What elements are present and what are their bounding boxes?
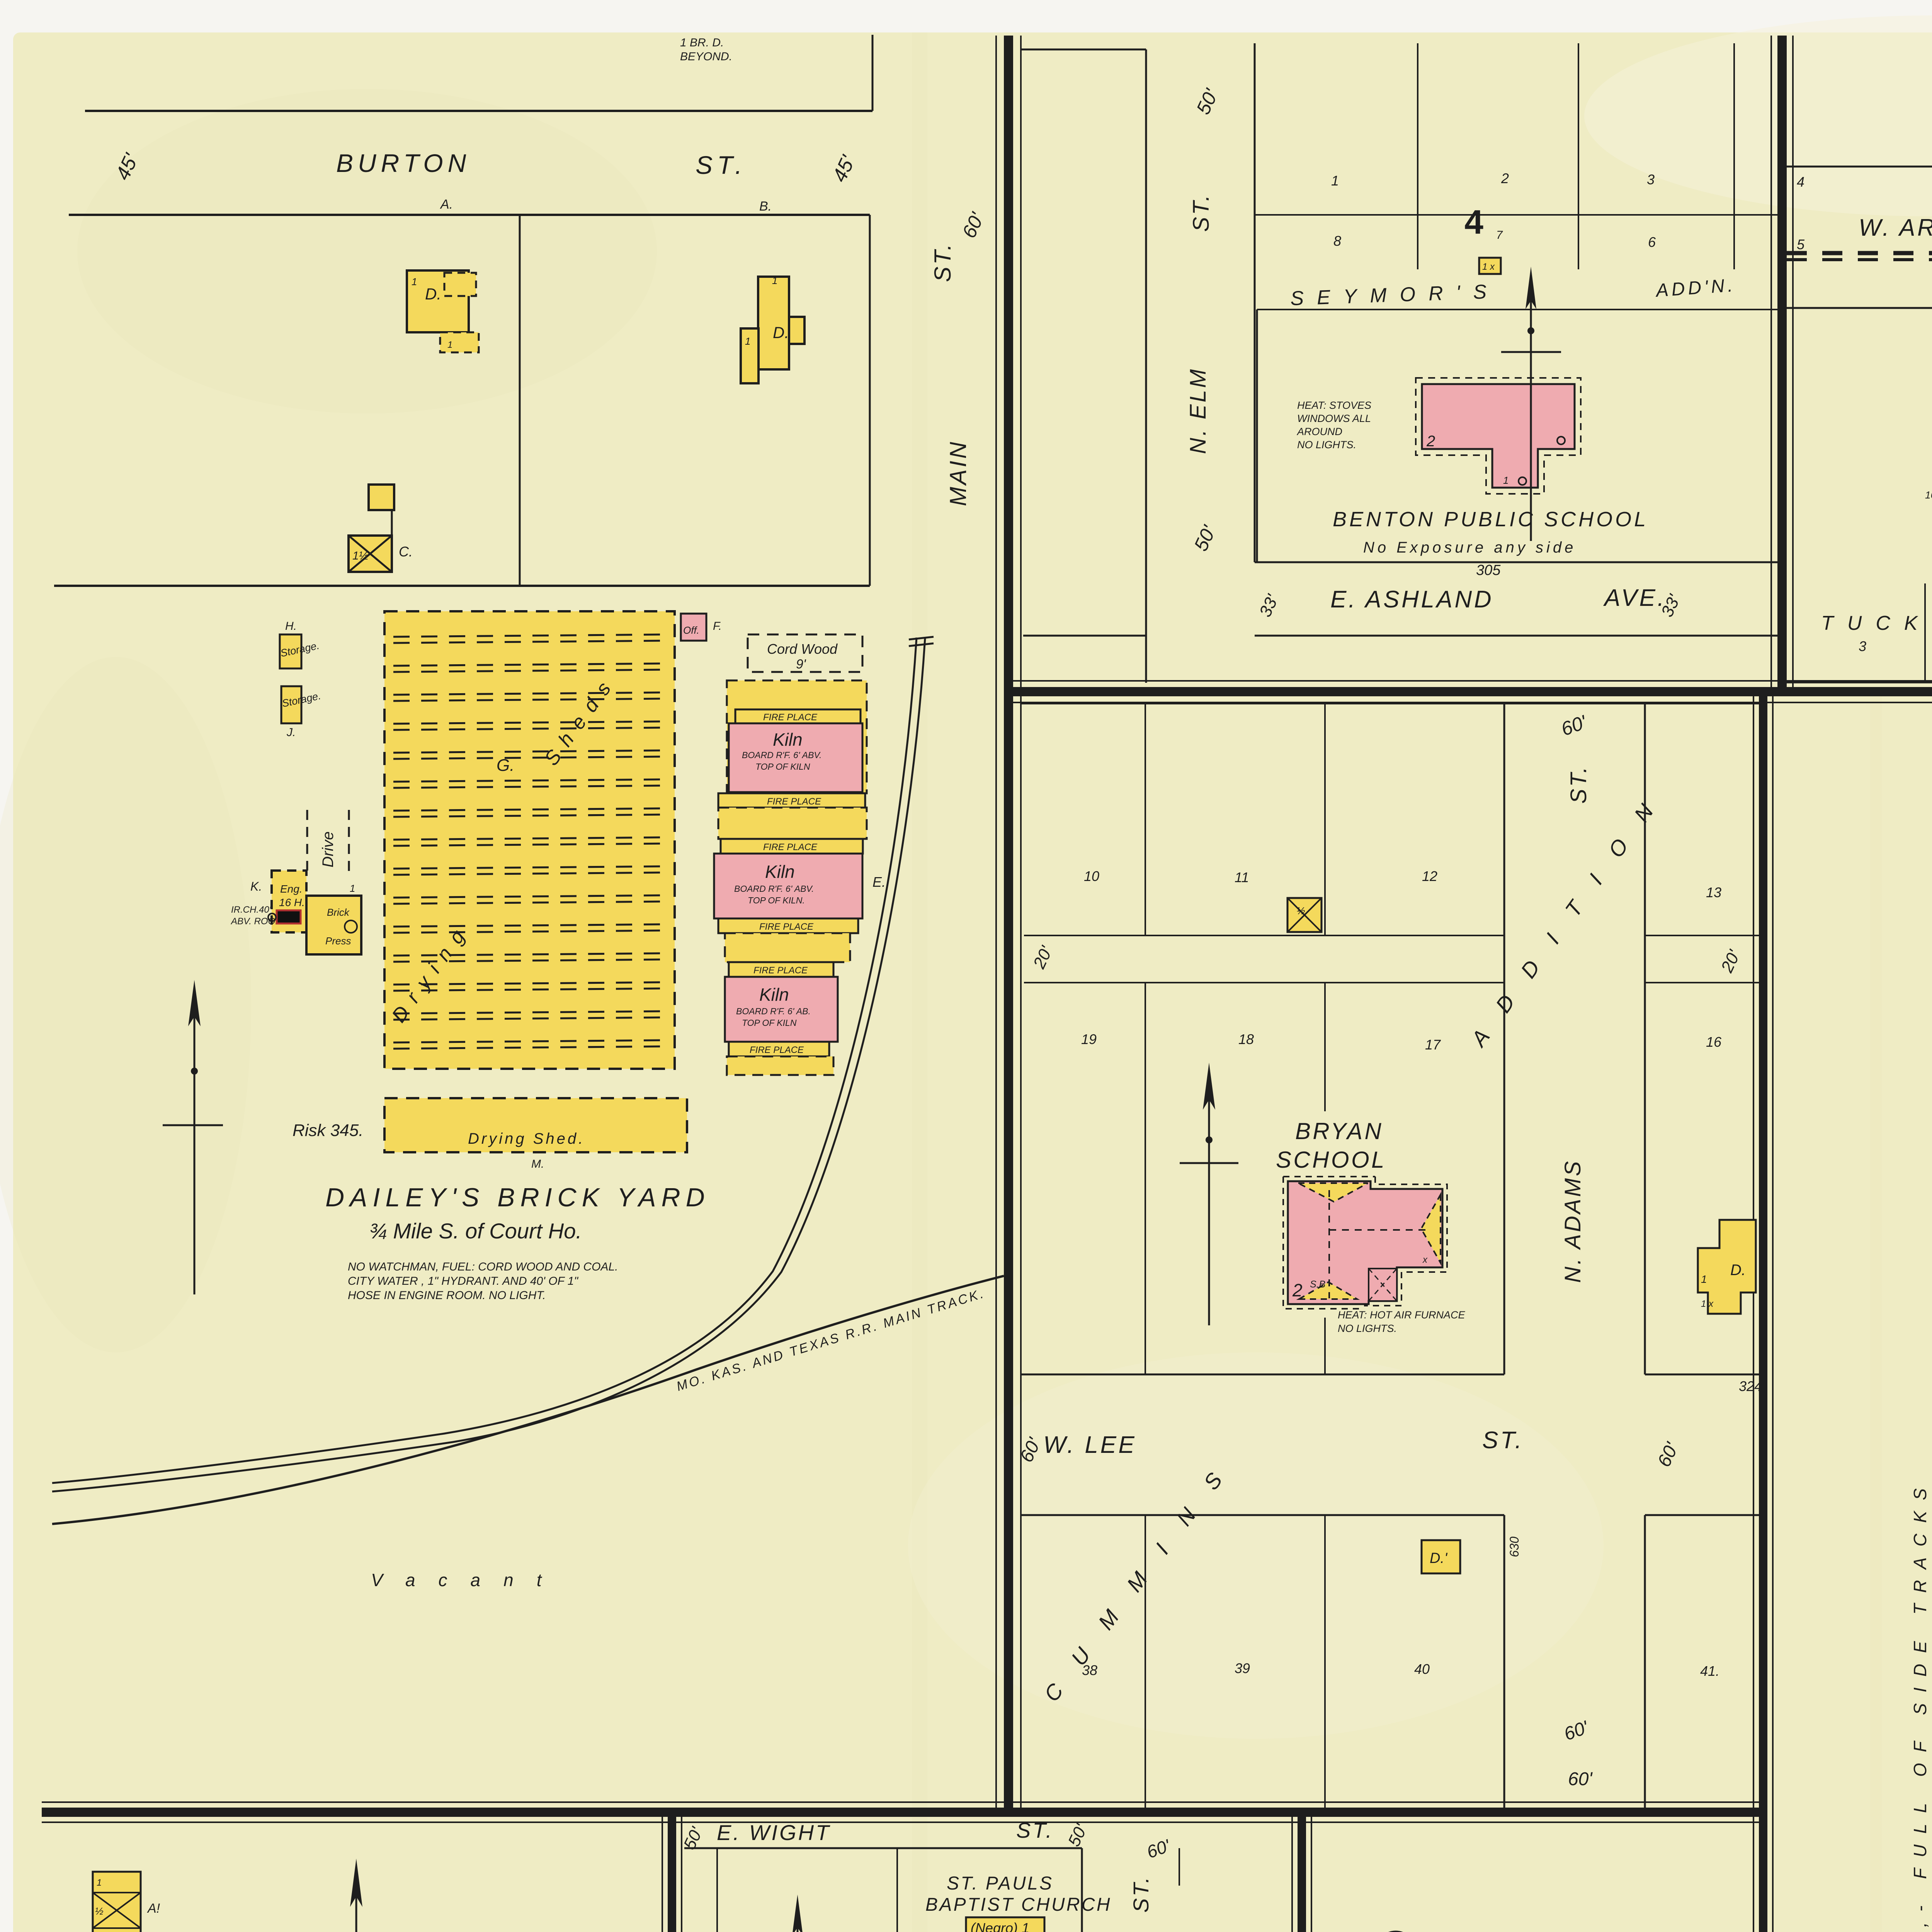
svg-text:1: 1 xyxy=(97,1878,102,1888)
svg-text:4: 4 xyxy=(1464,203,1483,241)
svg-text:TOP OF KILN: TOP OF KILN xyxy=(742,1018,797,1028)
svg-text:BRYAN: BRYAN xyxy=(1295,1118,1383,1144)
svg-text:WINDOWS ALL: WINDOWS ALL xyxy=(1297,413,1371,424)
svg-text:BEYOND.: BEYOND. xyxy=(680,50,732,63)
svg-text:HOSE IN ENGINE ROOM. NO LI: HOSE IN ENGINE ROOM. NO LIGHT. xyxy=(348,1289,546,1302)
svg-text:W. LEE: W. LEE xyxy=(1043,1432,1136,1458)
svg-text:No Exposure any side: No Exposure any side xyxy=(1363,539,1576,556)
svg-text:x: x xyxy=(1422,1255,1428,1265)
svg-text:1: 1 xyxy=(1503,474,1509,486)
svg-text:FIRE PLACE: FIRE PLACE xyxy=(767,796,821,807)
svg-text:TOP OF KILN: TOP OF KILN xyxy=(755,762,810,772)
svg-text:BAPTIST CHURCH: BAPTIST CHURCH xyxy=(925,1895,1112,1915)
svg-text:J.: J. xyxy=(286,726,296,739)
svg-text:NO WATCHMAN, FUEL: CORD WOOD: NO WATCHMAN, FUEL: CORD WOOD AND COAL. xyxy=(348,1260,618,1273)
svg-text:2: 2 xyxy=(1501,170,1509,186)
svg-text:E. ASHLAND: E. ASHLAND xyxy=(1330,586,1493,613)
svg-text:W. ARCH: W. ARCH xyxy=(1859,214,1932,241)
svg-text:D.: D. xyxy=(1730,1262,1746,1279)
svg-text:38: 38 xyxy=(1082,1662,1097,1678)
svg-text:16 H.: 16 H. xyxy=(279,896,305,908)
svg-text:H.: H. xyxy=(285,620,297,633)
svg-text:630: 630 xyxy=(1507,1536,1521,1557)
svg-text:E.: E. xyxy=(872,874,886,890)
svg-text:E. WIGHT: E. WIGHT xyxy=(717,1820,831,1845)
svg-text:1½: 1½ xyxy=(352,549,369,562)
svg-text:9': 9' xyxy=(796,657,806,672)
svg-text:BOARD R'F. 6' ABV.: BOARD R'F. 6' ABV. xyxy=(742,750,821,760)
svg-text:NO LIGHTS.: NO LIGHTS. xyxy=(1297,439,1356,451)
svg-text:ST.: ST. xyxy=(930,242,956,282)
svg-text:1: 1 xyxy=(350,883,355,894)
svg-text:3: 3 xyxy=(1859,638,1866,654)
svg-text:12: 12 xyxy=(1422,868,1437,884)
svg-text:2: 2 xyxy=(1292,1280,1303,1300)
svg-text:Off.: Off. xyxy=(683,624,699,636)
svg-text:M.: M. xyxy=(531,1158,544,1170)
svg-text:1: 1 xyxy=(772,275,777,286)
svg-text:Press: Press xyxy=(325,935,351,947)
svg-text:Cord Wood: Cord Wood xyxy=(767,641,838,657)
svg-text:41.: 41. xyxy=(1700,1663,1719,1679)
svg-text:½: ½ xyxy=(1297,905,1305,917)
svg-text:ST.: ST. xyxy=(1016,1818,1054,1842)
svg-text:Drying Shed.: Drying Shed. xyxy=(468,1130,585,1147)
svg-text:Kiln: Kiln xyxy=(759,985,789,1005)
svg-text:1 x: 1 x xyxy=(1482,262,1495,272)
svg-text:AVE.: AVE. xyxy=(1603,585,1666,611)
svg-text:HEAT: HOT AIR FURNACE: HEAT: HOT AIR FURNACE xyxy=(1338,1309,1466,1321)
svg-text:1: 1 xyxy=(1331,173,1339,189)
svg-text:Brick: Brick xyxy=(327,906,350,918)
svg-text:CITY WATER , 1" HYDRANT. A: CITY WATER , 1" HYDRANT. AND 40' OF 1" xyxy=(348,1275,578,1287)
svg-text:BOARD R'F. 6' AB.: BOARD R'F. 6' AB. xyxy=(736,1006,811,1016)
svg-text:Kiln: Kiln xyxy=(773,730,803,750)
svg-text:TUCKER'S: TUCKER'S xyxy=(1821,612,1932,634)
svg-text:D.: D. xyxy=(773,323,789,342)
svg-text:ST.: ST. xyxy=(696,151,747,179)
svg-text:160' TO: 160' TO xyxy=(1925,489,1932,501)
svg-text:7: 7 xyxy=(1496,229,1503,241)
svg-text:4: 4 xyxy=(1797,174,1804,190)
svg-text:8: 8 xyxy=(1333,233,1341,249)
svg-text:S.B: S.B xyxy=(1310,1279,1325,1290)
svg-text:C.: C. xyxy=(399,544,413,560)
svg-text:19: 19 xyxy=(1081,1031,1097,1047)
svg-text:40: 40 xyxy=(1414,1661,1430,1677)
svg-text:2: 2 xyxy=(1426,433,1435,450)
svg-text:DAILEY'S BRICK YARD: DAILEY'S BRICK YARD xyxy=(325,1183,710,1212)
svg-text:N. ELM: N. ELM xyxy=(1185,367,1211,454)
svg-text:FIRE PLACE: FIRE PLACE xyxy=(763,712,818,723)
svg-text:RAIL ROAD GROUND,- FULL OF: RAIL ROAD GROUND,- FULL OF SIDE TRACKS xyxy=(1910,1478,1930,1932)
svg-text:305: 305 xyxy=(1476,562,1501,578)
svg-text:FIRE PLACE: FIRE PLACE xyxy=(750,1045,804,1055)
svg-text:½: ½ xyxy=(95,1905,104,1917)
svg-text:3: 3 xyxy=(1647,172,1655,187)
svg-text:1: 1 xyxy=(412,276,417,287)
svg-text:FIRE PLACE: FIRE PLACE xyxy=(759,922,814,932)
svg-text:MAIN: MAIN xyxy=(945,440,971,506)
svg-text:ST.: ST. xyxy=(1482,1427,1524,1454)
svg-text:ST.: ST. xyxy=(1129,1875,1153,1913)
svg-text:Drive: Drive xyxy=(320,832,337,867)
svg-text:FIRE PLACE: FIRE PLACE xyxy=(763,842,818,852)
svg-text:16: 16 xyxy=(1706,1034,1722,1050)
svg-text:N. ADAMS: N. ADAMS xyxy=(1560,1159,1585,1283)
svg-text:(Negro) 1: (Negro) 1 xyxy=(971,1920,1029,1932)
svg-text:FIRE PLACE: FIRE PLACE xyxy=(753,965,808,976)
svg-text:Kiln: Kiln xyxy=(765,862,795,882)
svg-text:D.': D.' xyxy=(1430,1550,1448,1566)
svg-text:10: 10 xyxy=(1084,868,1099,884)
svg-text:IR.CH.40': IR.CH.40' xyxy=(231,905,272,915)
svg-text:D.: D. xyxy=(425,285,441,303)
svg-text:ST. PAULS: ST. PAULS xyxy=(947,1873,1053,1894)
svg-text:NO LIGHTS.: NO LIGHTS. xyxy=(1338,1323,1397,1334)
svg-text:F.: F. xyxy=(713,620,722,633)
svg-text:B.: B. xyxy=(759,199,772,214)
svg-text:18: 18 xyxy=(1238,1031,1254,1047)
svg-text:1: 1 xyxy=(447,340,452,350)
svg-text:K.: K. xyxy=(250,879,262,893)
svg-text:BOARD R'F. 6' ABV.: BOARD R'F. 6' ABV. xyxy=(734,884,814,894)
svg-text:¾ Mile S. of Court Ho.: ¾ Mile S. of Court Ho. xyxy=(369,1219,582,1243)
svg-text:Risk 345.: Risk 345. xyxy=(293,1121,363,1140)
svg-text:11: 11 xyxy=(1235,869,1249,885)
svg-text:60': 60' xyxy=(1568,1769,1593,1789)
svg-text:AROUND: AROUND xyxy=(1296,426,1342,437)
svg-text:HEAT: STOVES: HEAT: STOVES xyxy=(1297,400,1371,411)
svg-text:A!: A! xyxy=(147,1901,160,1916)
svg-text:39: 39 xyxy=(1235,1660,1250,1676)
svg-text:17: 17 xyxy=(1425,1037,1441,1053)
svg-text:SCHOOL: SCHOOL xyxy=(1276,1147,1386,1173)
svg-text:BURTON: BURTON xyxy=(336,149,471,177)
svg-text:BENTON PUBLIC SCHOOL: BENTON PUBLIC SCHOOL xyxy=(1333,508,1648,531)
svg-text:1: 1 xyxy=(1701,1273,1707,1285)
svg-text:1 x: 1 x xyxy=(1701,1299,1714,1309)
svg-text:ST.: ST. xyxy=(1189,193,1214,232)
svg-text:TOP OF KILN.: TOP OF KILN. xyxy=(748,895,805,905)
svg-text:A.: A. xyxy=(440,197,453,212)
svg-text:Vacant: Vacant xyxy=(371,1570,565,1590)
svg-text:13: 13 xyxy=(1706,884,1721,900)
svg-text:1: 1 xyxy=(745,335,750,347)
svg-text:5: 5 xyxy=(1797,236,1805,252)
svg-text:1 BR. D.: 1 BR. D. xyxy=(680,36,724,49)
svg-text:324: 324 xyxy=(1739,1378,1762,1394)
svg-text:ST.: ST. xyxy=(1566,765,1591,804)
svg-text:Eng.: Eng. xyxy=(280,883,303,895)
svg-text:6: 6 xyxy=(1648,234,1656,250)
